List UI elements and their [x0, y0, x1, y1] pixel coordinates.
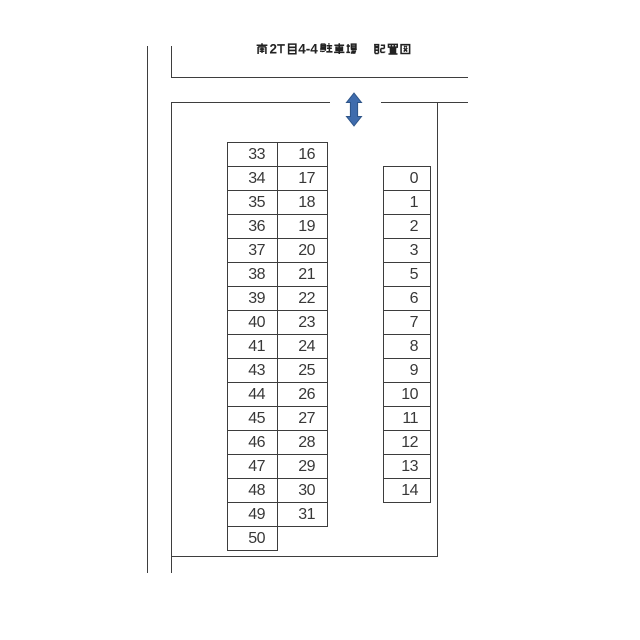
svg-text:4-4: 4-4 — [298, 42, 318, 57]
svg-text:2: 2 — [270, 42, 278, 57]
